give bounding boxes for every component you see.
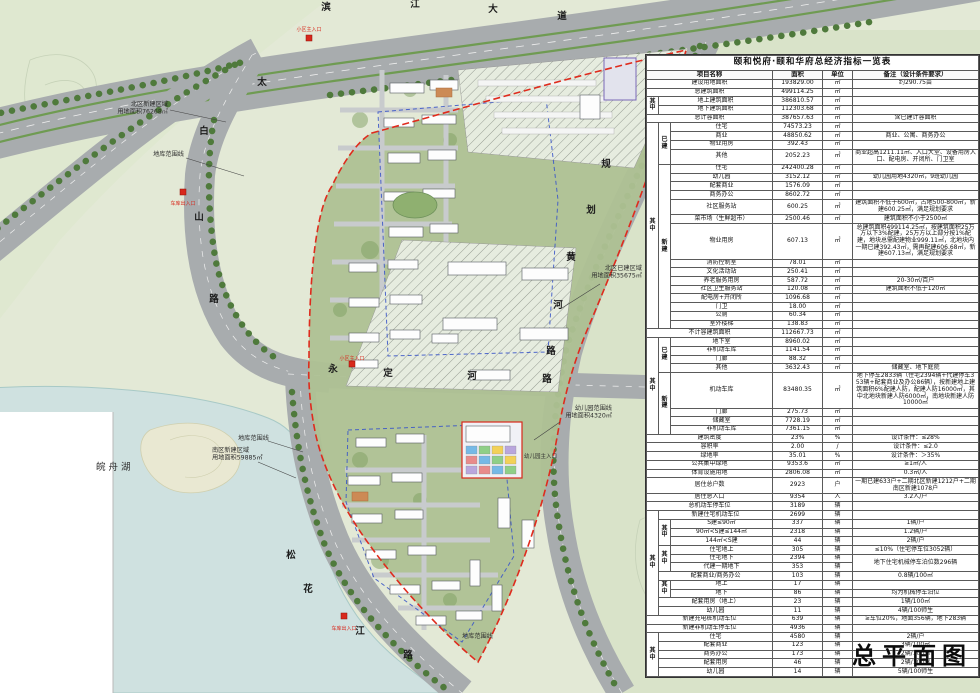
row-item-name: 地上建筑面积 [659,97,773,106]
table-row: 其他2052.23㎡商业超高1211.11㎡、入口大堂、设备用房入口、配电房、开… [647,149,979,164]
row-area-value: 17 [773,580,823,589]
table-row: 幼儿园3152.12㎡幼儿园用地4320㎡，9班幼儿园 [647,173,979,182]
row-note [853,580,979,589]
row-area-value: 2806.08 [773,469,823,478]
marker-label: 小区主入口 [296,26,321,33]
table-row: 配套用房（地上）23辆1辆/100㎡ [647,598,979,607]
row-unit: 辆 [823,650,853,659]
row-item-name: 绿地率 [647,452,773,461]
row-area-value: 44 [773,537,823,546]
row-unit: ㎡ [823,114,853,123]
building-slab [348,476,380,485]
road-label-songhuajiang: 松 [286,549,296,561]
group-label: 其中 [647,633,659,677]
row-note [853,140,979,149]
row-item-name: 物业用房 [671,140,773,149]
subgroup-label: 已建 [659,338,671,373]
row-area-value: 60.34 [773,311,823,320]
table-row: 其中已建地下室8960.02㎡ [647,338,979,347]
row-item-name: 住宅地下 [671,554,773,563]
row-unit: ㎡ [823,199,853,214]
row-note: 2辆/户 [853,537,979,546]
row-note: 建筑面积不低于120㎡ [853,285,979,294]
row-unit: ㎡ [823,105,853,114]
row-area-value: 9353.6 [773,460,823,469]
building-slab [349,333,379,342]
road-label-taibaishan: 白 [199,125,209,137]
table-row: 建筑密度23%%设计条件：≤28% [647,434,979,443]
row-item-name: 配套商业 [671,182,773,191]
building-slab [498,498,510,528]
marker-label: 小区主入口 [339,355,364,362]
road-label-binjiang: 道 [557,10,567,22]
row-note [853,294,979,303]
kindergarten-tile [492,466,503,474]
road-label-yongdinghe: 定 [382,367,393,379]
row-note [853,105,979,114]
row-unit: ㎡ [823,224,853,260]
map-label-garage_line_s2: 地库范围线 [462,632,493,640]
group-label: 其中 [647,338,659,435]
building-slab [356,438,386,447]
row-unit: ㎡ [823,425,853,434]
road-label-guihuanghe: 路 [546,345,556,357]
table-row: 公共集中绿地9353.6㎡≥1㎡/人 [647,460,979,469]
row-note: 均为机械停车泊位 [853,589,979,598]
table-row: 地下建筑面积112303.68㎡ [647,105,979,114]
row-unit: 辆 [823,615,853,624]
road-label-songhuajiang: 江 [355,625,365,637]
row-note: 幼儿园用地4320㎡，9班幼儿园 [853,173,979,182]
table-row: 非机动车库7361.15㎡ [647,425,979,434]
row-item-name: 地上 [671,580,773,589]
row-item-name: 室外楼梯 [671,320,773,329]
row-item-name: 门卫 [671,303,773,312]
table-row: 居住总人口9354人3.2人/户 [647,493,979,502]
row-area-value: 112667.73 [773,329,823,338]
road-label-binjiang: 江 [410,0,420,10]
row-item-name: 建设用地面积 [647,79,773,88]
row-item-name: 地下室 [671,338,773,347]
row-area-value: 35.01 [773,452,823,461]
table-row: 门卫18.00㎡ [647,303,979,312]
row-note: 商业超高1211.11㎡、入口大堂、设备用房入口、配电房、开闭所、门卫室 [853,149,979,164]
row-item-name: 配套用房 [659,659,773,668]
building-slab [522,268,568,280]
row-item-name: 容积率 [647,443,773,452]
row-area-value: 11 [773,607,823,616]
economic-indicators-table: 颐和悦府·颐和华府总经济指标一览表 项目名称 面积 单位 备注（设计条件要求） … [645,54,980,678]
row-item-name: 物业用房 [671,224,773,260]
row-area-value: 23% [773,434,823,443]
subgroup-label: 新建 [659,372,671,434]
sheet-margin [0,412,113,693]
table-row: 其中住宅地上305辆≤10%（住宅停车位3052辆） [647,546,979,555]
row-note: 1辆/户 [853,519,979,528]
table-title: 颐和悦府·颐和华府总经济指标一览表 [647,56,979,71]
subgroup-label: 其中 [659,580,671,597]
row-unit: 辆 [823,607,853,616]
row-note [853,511,979,520]
row-area-value: 353 [773,563,823,572]
row-unit: ㎡ [823,164,853,173]
row-item-name: S建≤90㎡ [671,519,773,528]
sport-court-south [352,492,368,501]
building-slab [352,514,382,523]
row-area-value: 18.00 [773,303,823,312]
table-header-row: 项目名称 面积 单位 备注（设计条件要求） [647,70,979,79]
table-row: 配电房+开闭所1096.68㎡ [647,294,979,303]
table-row: 配套商业/商务办公103辆0.8辆/100㎡ [647,572,979,581]
table-row: 新建非机动车停车位4936辆 [647,624,979,633]
row-unit: ㎡ [823,191,853,200]
row-note: 1辆/100㎡ [853,598,979,607]
building-slab [443,318,497,330]
table-row: 配套商业1576.09㎡ [647,182,979,191]
building-slab [432,334,458,343]
kindergarten-tile [466,446,477,454]
row-unit: ㎡ [823,123,853,132]
row-note: 地下停车2833辆（住宅2394辆+代建停车353辆+配套商业及办公86辆），按… [853,372,979,408]
table-row: 商务办公8602.72㎡ [647,191,979,200]
table-row: 居住总户数2923户一期已建633户+二期北区新建1212户+二期南区新建107… [647,478,979,493]
row-area-value: 337 [773,519,823,528]
row-note: 储藏室、地下庭院 [853,364,979,373]
row-item-name: 地下 [671,589,773,598]
row-unit: ㎡ [823,97,853,106]
row-item-name: 不计容建筑面积 [647,329,773,338]
row-unit: ㎡ [823,173,853,182]
map-label-lake_name: 皖舟湖 [96,461,134,473]
kindergarten-tile [505,456,516,464]
row-unit: ㎡ [823,469,853,478]
table-row: 不计容建筑面积112667.73㎡ [647,329,979,338]
row-item-name: 社区服务站 [671,199,773,214]
row-unit: 辆 [823,659,853,668]
table-row: 144㎡<S建44辆2辆/户 [647,537,979,546]
table-row: 门廊88.32㎡ [647,355,979,364]
building-slab [396,434,424,443]
building-slab [492,585,502,611]
col-header-name: 项目名称 [647,70,773,79]
row-area-value: 86 [773,589,823,598]
row-unit: ㎡ [823,268,853,277]
row-area-value: 120.08 [773,285,823,294]
row-note: 地下住宅机械停车泊位数296辆 [853,554,979,571]
row-unit: ㎡ [823,460,853,469]
kindergarten-tile [466,456,477,464]
building-slab [384,118,414,127]
row-item-name: 门廊 [671,408,773,417]
table-row: 社区卫生服务站120.08㎡建筑面积不低于120㎡ [647,285,979,294]
row-area-value: 14 [773,668,823,677]
row-area-value: 387657.63 [773,114,823,123]
row-unit: ㎡ [823,79,853,88]
table-row: 其中地上建筑面积386810.57㎡ [647,97,979,106]
row-item-name: 机动车库 [671,372,773,408]
row-item-name: 90㎡<S建≤144㎡ [671,528,773,537]
row-unit: 辆 [823,511,853,520]
row-unit: ㎡ [823,320,853,329]
table-row: 消防控制室78.01㎡ [647,259,979,268]
table-row: 门廊275.73㎡ [647,408,979,417]
row-item-name: 养老服务用房 [671,277,773,286]
row-unit: 辆 [823,589,853,598]
row-area-value: 2394 [773,554,823,563]
road-label-guihuanghe: 划 [586,204,596,216]
row-item-name: 社区卫生服务站 [671,285,773,294]
row-area-value: 1096.68 [773,294,823,303]
table-row: 幼儿园11辆4辆/100师生 [647,607,979,616]
row-area-value: 386810.57 [773,97,823,106]
kindergarten-tile [466,466,477,474]
row-area-value: 3632.43 [773,364,823,373]
row-area-value: 123 [773,641,823,650]
row-unit: ㎡ [823,294,853,303]
row-unit: ㎡ [823,364,853,373]
building-slab [395,510,423,519]
table-row: 其中地上17辆 [647,580,979,589]
row-unit: ㎡ [823,149,853,164]
row-note [853,259,979,268]
row-item-name: 菜市场（生鲜超市） [671,215,773,224]
table-row: 其中新建住宅机动车位2699辆 [647,511,979,520]
table-row: 物业用房392.43㎡ [647,140,979,149]
row-item-name: 总计容面积 [647,114,773,123]
road-label-yongdinghe: 河 [467,370,477,382]
row-area-value: 499114.25 [773,88,823,97]
row-area-value: 4580 [773,633,823,642]
row-note: 0.3㎡/人 [853,469,979,478]
table-row: 新建住宅242400.28㎡ [647,164,979,173]
row-area-value: 9354 [773,493,823,502]
row-unit: 辆 [823,580,853,589]
row-unit: 辆 [823,598,853,607]
row-unit: ㎡ [823,408,853,417]
table-row: 总建筑面积499114.25㎡ [647,88,979,97]
row-area-value: 7361.15 [773,425,823,434]
row-note: 商业、公寓、商务办公 [853,132,979,141]
row-area-value: 74573.23 [773,123,823,132]
row-unit: 辆 [823,502,853,511]
building-slab [520,328,568,340]
row-note: ≥1㎡/人 [853,460,979,469]
row-item-name: 文化活动站 [671,268,773,277]
row-area-value: 2923 [773,478,823,493]
road-label-songhuajiang: 路 [403,649,413,661]
row-area-value: 103 [773,572,823,581]
row-note: 4辆/100师生 [853,607,979,616]
road-label-guihuanghe: 黄 [566,251,576,263]
group-label: 其中 [647,97,659,114]
row-item-name: 幼儿园 [659,607,773,616]
row-area-value: 242400.28 [773,164,823,173]
row-item-name: 配套用房（地上） [659,598,773,607]
row-note: 总建筑面积499114.25㎡，按建筑面积25万方以下3%配建，25万方以上部分… [853,224,979,260]
kindergarten-tile [505,466,516,474]
row-note [853,355,979,364]
col-header-note: 备注（设计条件要求） [853,70,979,79]
row-unit: ㎡ [823,338,853,347]
table-row: 非机动车库1141.54㎡ [647,346,979,355]
building-slab [428,150,456,160]
kindergarten [462,422,522,478]
row-area-value: 587.72 [773,277,823,286]
row-area-value: 46 [773,659,823,668]
row-unit: / [823,443,853,452]
table-row: 其中S建≤90㎡337辆1辆/户 [647,519,979,528]
row-item-name: 其他 [671,149,773,164]
kindergarten-tile [479,466,490,474]
row-unit: ㎡ [823,346,853,355]
row-unit: ㎡ [823,88,853,97]
site-plan-sheet: 滨江大道太白山路永定河路规划黄河路松花江路 北区新建区域用地面积76268㎡地库… [0,0,980,693]
row-area-value: 600.25 [773,199,823,214]
row-note [853,624,979,633]
row-note [853,268,979,277]
row-unit: 辆 [823,641,853,650]
row-note [853,182,979,191]
row-area-value: 1141.54 [773,346,823,355]
row-note [853,408,979,417]
road-label-guihuanghe: 规 [601,158,611,170]
table-row: 地下86辆均为机械停车泊位 [647,589,979,598]
col-header-area: 面积 [773,70,823,79]
row-unit: 人 [823,493,853,502]
row-item-name: 幼儿园 [671,173,773,182]
table-row: 储藏室7728.19㎡ [647,417,979,426]
row-note: 建筑面积不小于2500㎡ [853,215,979,224]
row-unit: % [823,452,853,461]
row-note [853,191,979,200]
row-item-name: 总机动车停车位 [647,502,773,511]
row-area-value: 2052.23 [773,149,823,164]
row-note: 建筑面积不低于600㎡，占地500-800㎡，新建600.25㎡，满足规划要求 [853,199,979,214]
row-area-value: 392.43 [773,140,823,149]
row-item-name: 其他 [671,364,773,373]
row-item-name: 配套商业/商务办公 [659,572,773,581]
row-unit: 辆 [823,546,853,555]
parking-row [478,80,596,86]
row-unit: ㎡ [823,355,853,364]
sport-court-north [436,88,452,97]
row-note: 20-30㎡/百户 [853,277,979,286]
row-item-name: 新建住宅机动车位 [659,511,773,520]
building-slab [388,260,418,269]
row-item-name: 配套商业 [659,641,773,650]
row-area-value: 2500.46 [773,215,823,224]
building-slab [388,153,420,163]
road-label-binjiang: 滨 [321,1,331,13]
row-unit: ㎡ [823,259,853,268]
row-item-name: 新建非机动车停车位 [647,624,773,633]
row-unit: ㎡ [823,215,853,224]
row-item-name: 商业 [671,132,773,141]
kindergarten-tile [479,456,490,464]
row-area-value: 23 [773,598,823,607]
row-unit: 辆 [823,528,853,537]
map-label-garage_line_s: 地库范围线 [238,434,269,442]
row-note [853,417,979,426]
parking-row [502,128,614,134]
row-item-name: 门廊 [671,355,773,364]
row-area-value: 193829.00 [773,79,823,88]
subgroup-label: 其中 [659,546,671,572]
group-label: 其中 [647,511,659,616]
row-unit: ㎡ [823,417,853,426]
group-label: 其中 [647,123,659,329]
building-slab [366,550,396,559]
table-row: 社区服务站600.25㎡建筑面积不低于600㎡，占地500-800㎡，新建600… [647,199,979,214]
row-item-name: 新建充电桩机动车位 [647,615,773,624]
row-unit: ㎡ [823,311,853,320]
row-item-name: 建筑密度 [647,434,773,443]
road-label-binjiang: 大 [488,3,498,15]
row-unit: ㎡ [823,303,853,312]
row-unit: ㎡ [823,182,853,191]
marker-label: 车库出入口 [170,200,195,207]
row-unit: ㎡ [823,132,853,141]
subgroup-label: 已建 [659,123,671,165]
central-garden [393,192,437,218]
row-unit: 辆 [823,519,853,528]
row-note [853,88,979,97]
row-note: 设计条件：≤2.0 [853,443,979,452]
table-row: 其中已建住宅74573.23㎡ [647,123,979,132]
row-unit: % [823,434,853,443]
row-item-name: 住宅 [659,633,773,642]
building-slab [456,611,482,620]
table-row: 住宅地下2394辆地下住宅机械停车泊位数296辆 [647,554,979,563]
row-area-value: 112303.68 [773,105,823,114]
row-item-name: 居住总户数 [647,478,773,493]
building-slab [448,262,506,275]
map-label-garage_line_n: 地库范围线 [153,150,184,158]
row-note: 设计条件：＞35% [853,452,979,461]
row-area-value: 275.73 [773,408,823,417]
row-note [853,164,979,173]
row-area-value: 88.32 [773,355,823,364]
row-item-name: 住宅 [671,123,773,132]
building-slab [390,330,420,339]
row-area-value: 2318 [773,528,823,537]
row-area-value: 305 [773,546,823,555]
kindergarten-tile [492,456,503,464]
row-note [853,303,979,312]
row-note [853,502,979,511]
row-area-value: 8602.72 [773,191,823,200]
building-slab [432,581,460,590]
marker-label: 车库出入口 [331,625,356,632]
row-item-name: 商务办公 [659,650,773,659]
table-row: 总计容面积387657.63㎡含已建计容面积 [647,114,979,123]
table-row: 室外楼梯138.83㎡ [647,320,979,329]
row-note [853,346,979,355]
row-unit: 辆 [823,563,853,572]
row-note: 1.2辆/户 [853,528,979,537]
commercial-tower [604,58,636,100]
row-note [853,425,979,434]
building-slab [408,546,436,555]
row-unit: 辆 [823,572,853,581]
row-item-name: 幼儿园 [659,668,773,677]
row-item-name: 地下建筑面积 [659,105,773,114]
building-slab [470,560,480,586]
building-slab [422,115,456,124]
map-label-kg_entrance: 幼儿园主入口 [524,452,557,460]
table-row: 90㎡<S建≤144㎡2318辆1.2辆/户 [647,528,979,537]
row-unit: ㎡ [823,140,853,149]
